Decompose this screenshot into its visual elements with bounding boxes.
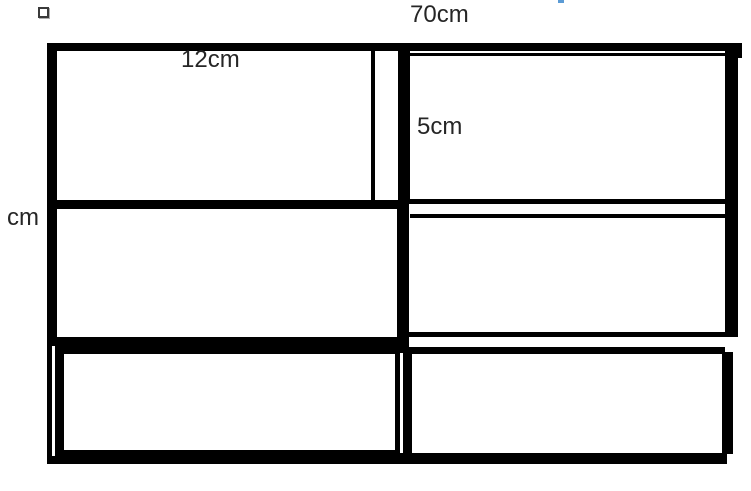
label-brick-height: 5cm	[417, 115, 462, 139]
wall-top-border	[47, 43, 742, 51]
brick6-left-edge	[403, 347, 412, 455]
brick5-bottom-edge	[57, 450, 400, 455]
brick1-right-edge	[371, 51, 375, 202]
brick4-bottom-edge	[403, 332, 733, 337]
row1-left-bottom-edge	[47, 200, 409, 209]
brick5-left-edge	[55, 345, 64, 458]
brick5-right-edge	[395, 347, 400, 454]
label-left-partial-unit: cm	[7, 206, 39, 230]
row2-divider	[397, 204, 409, 353]
label-brick-width: 12cm	[181, 48, 240, 72]
diagram-canvas: 70cm 12cm 5cm cm	[0, 0, 751, 491]
label-top-width: 70cm	[410, 3, 469, 27]
brick4-top-edge	[410, 214, 726, 218]
brick2-bottom-edge	[410, 199, 726, 204]
brick6-top-edge	[403, 347, 725, 354]
text-cursor-fragment	[558, 0, 564, 3]
brick2-left-edge	[398, 47, 410, 204]
wall-right-border-upper	[725, 47, 738, 337]
brick2-top-edge	[410, 53, 733, 56]
square-bullet-icon	[38, 7, 49, 18]
brick6-right-edge	[722, 352, 733, 454]
brick5-top-edge	[55, 345, 400, 354]
